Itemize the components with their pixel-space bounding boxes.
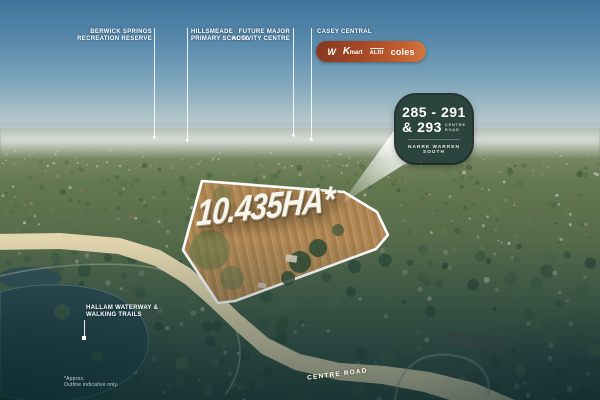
address-numbers: 285 - 291 bbox=[396, 105, 472, 120]
address-badge: 285 - 291 & 293 CENTRE ROAD NARRE WARREN… bbox=[396, 95, 472, 163]
label-line: WALKING TRAILS bbox=[86, 312, 158, 319]
lake-island bbox=[91, 350, 103, 362]
site-tree bbox=[309, 239, 327, 257]
label-hallam-waterway: HALLAM WATERWAY & WALKING TRAILS bbox=[86, 305, 158, 319]
leader-line-hallam bbox=[84, 320, 85, 336]
label-line: BERWICK SPRINGS bbox=[77, 29, 152, 36]
leader-line-future bbox=[293, 28, 294, 135]
label-casey-central: CASEY CENTRAL bbox=[317, 29, 372, 36]
label-line: CASEY CENTRAL bbox=[317, 29, 372, 36]
address-suburb: NARRE WARREN SOUTH bbox=[396, 144, 472, 154]
leader-line-berwick bbox=[154, 28, 155, 137]
address-numbers-2: & 293 bbox=[402, 120, 442, 135]
casey-central-retailers: W Kmart ALDI coles bbox=[316, 41, 426, 62]
label-berwick-springs: BERWICK SPRINGS RECREATION RESERVE bbox=[77, 29, 152, 43]
badge-divider bbox=[408, 139, 460, 140]
aldi-logo-icon: ALDI bbox=[370, 48, 384, 56]
address-road: CENTRE ROAD bbox=[445, 123, 466, 132]
site-vegetation bbox=[190, 230, 230, 270]
disclaimer-text: *Approx. Outline indicative only. bbox=[64, 376, 118, 388]
coles-logo-icon: coles bbox=[391, 47, 415, 57]
site-tree bbox=[332, 224, 344, 236]
aerial-marketing-image: BERWICK SPRINGS RECREATION RESERVE HILLS… bbox=[0, 0, 600, 400]
site-tree bbox=[281, 271, 295, 285]
label-line: ACTIVITY CENTRE bbox=[232, 36, 290, 43]
lake-island bbox=[54, 304, 70, 320]
label-line: RECREATION RESERVE bbox=[77, 36, 152, 43]
leader-dot bbox=[82, 336, 86, 340]
kmart-logo-icon: Kmart bbox=[343, 46, 363, 57]
label-future-activity-centre: FUTURE MAJOR ACTIVITY CENTRE bbox=[232, 29, 290, 43]
leader-line-casey bbox=[311, 28, 312, 139]
label-line: FUTURE MAJOR bbox=[232, 29, 290, 36]
woolworths-logo-icon: W bbox=[327, 46, 336, 57]
site-vegetation bbox=[220, 266, 244, 290]
label-line: HALLAM WATERWAY & bbox=[86, 305, 158, 312]
leader-line-hillsmeade bbox=[187, 28, 188, 140]
